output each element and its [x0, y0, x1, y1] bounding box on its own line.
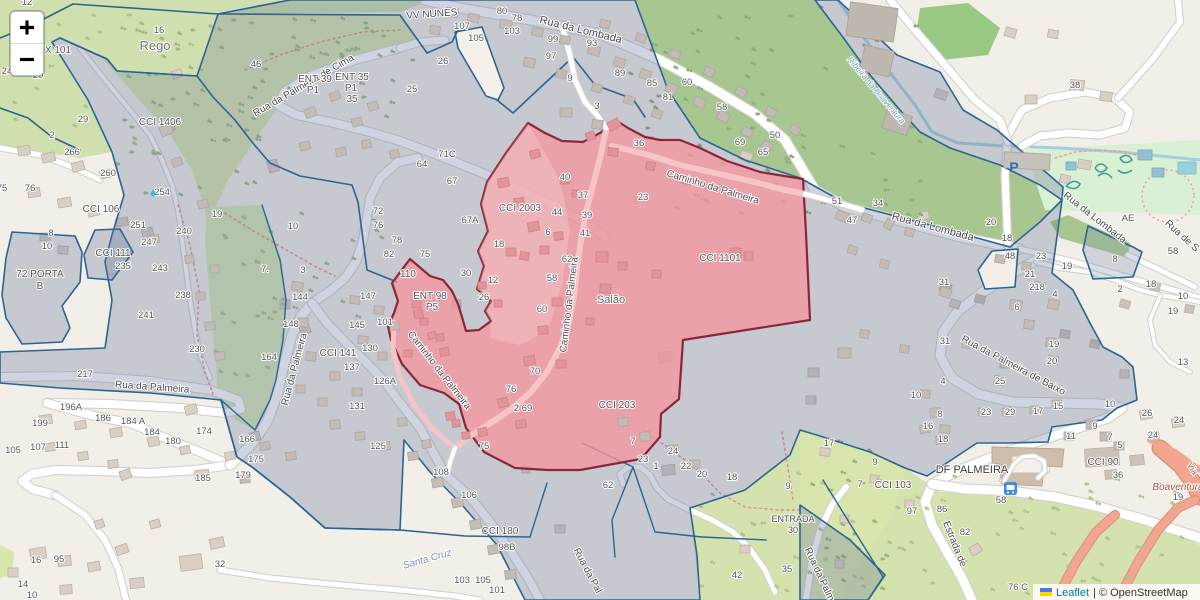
svg-text:166: 166 — [239, 434, 255, 445]
svg-text:108: 108 — [433, 467, 449, 478]
svg-text:101: 101 — [377, 317, 393, 328]
svg-text:35: 35 — [782, 564, 793, 575]
svg-text:32: 32 — [215, 559, 226, 570]
svg-text:31: 31 — [940, 336, 951, 347]
svg-text:64: 64 — [417, 159, 428, 170]
svg-text:29: 29 — [78, 114, 89, 125]
svg-text:243: 243 — [152, 263, 168, 274]
svg-text:8: 8 — [1112, 254, 1117, 265]
svg-text:Salão: Salão — [597, 294, 625, 306]
svg-text:24: 24 — [668, 446, 679, 457]
svg-text:23: 23 — [638, 454, 649, 465]
svg-text:99: 99 — [548, 34, 559, 45]
svg-text:P5: P5 — [426, 302, 439, 313]
svg-text:185: 185 — [195, 473, 211, 484]
svg-text:238: 238 — [175, 290, 191, 301]
svg-text:58: 58 — [717, 102, 728, 113]
svg-text:3: 3 — [594, 101, 599, 112]
svg-text:78: 78 — [392, 235, 403, 246]
svg-text:218: 218 — [1029, 282, 1045, 293]
svg-text:25: 25 — [995, 376, 1006, 387]
svg-text:39: 39 — [582, 210, 593, 221]
svg-text:65: 65 — [758, 147, 769, 158]
svg-text:103: 103 — [504, 26, 520, 37]
svg-text:62: 62 — [562, 254, 573, 265]
svg-text:78: 78 — [512, 13, 523, 24]
svg-text:14: 14 — [18, 579, 29, 590]
svg-text:164: 164 — [261, 352, 277, 363]
svg-text:260: 260 — [100, 168, 116, 179]
svg-text:P1: P1 — [307, 85, 320, 96]
svg-text:26: 26 — [438, 56, 449, 67]
svg-text:7: 7 — [857, 479, 862, 490]
svg-text:10: 10 — [288, 221, 299, 232]
svg-text:23: 23 — [1036, 251, 1047, 262]
svg-text:89: 89 — [615, 68, 626, 79]
svg-text:38: 38 — [1070, 80, 1081, 91]
svg-text:3: 3 — [300, 265, 305, 276]
svg-text:36: 36 — [1113, 470, 1124, 481]
svg-text:21: 21 — [1025, 269, 1036, 280]
svg-text:9: 9 — [785, 481, 790, 492]
svg-text:76: 76 — [373, 220, 384, 231]
svg-text:251: 251 — [130, 220, 146, 231]
svg-text:DF PALMEIRA: DF PALMEIRA — [936, 464, 1009, 476]
svg-text:CCI 2003: CCI 2003 — [499, 203, 542, 214]
svg-text:95: 95 — [54, 554, 65, 565]
svg-text:ENT 35: ENT 35 — [335, 72, 369, 83]
svg-text:9: 9 — [1092, 421, 1097, 432]
svg-text:19: 19 — [212, 209, 223, 220]
svg-text:241: 241 — [138, 310, 154, 321]
svg-text:130: 130 — [362, 343, 378, 354]
svg-text:7.: 7. — [261, 264, 269, 275]
svg-text:19: 19 — [1062, 261, 1073, 272]
svg-text:51: 51 — [832, 196, 843, 207]
svg-text:199: 199 — [32, 418, 48, 429]
svg-text:7: 7 — [1107, 432, 1112, 443]
svg-text:131: 131 — [349, 401, 365, 412]
svg-text:105: 105 — [468, 33, 484, 44]
svg-text:ENTRADA: ENTRADA — [771, 514, 814, 524]
svg-text:217: 217 — [77, 369, 93, 380]
svg-text:110: 110 — [400, 269, 416, 280]
svg-text:ENT 39: ENT 39 — [298, 74, 332, 85]
svg-text:18: 18 — [494, 239, 505, 250]
svg-text:16: 16 — [923, 421, 934, 432]
svg-text:42: 42 — [732, 570, 743, 581]
svg-text:75: 75 — [420, 249, 431, 260]
svg-text:CCI 1101: CCI 1101 — [699, 253, 741, 264]
svg-text:10: 10 — [27, 590, 38, 600]
svg-text:2 69: 2 69 — [514, 403, 533, 414]
svg-text:10: 10 — [1105, 399, 1116, 410]
svg-text:25: 25 — [407, 84, 418, 95]
svg-text:60: 60 — [537, 304, 548, 315]
svg-text:72: 72 — [373, 206, 384, 217]
svg-text:18: 18 — [727, 472, 738, 483]
svg-text:23: 23 — [638, 192, 649, 203]
svg-text:5: 5 — [1117, 440, 1122, 451]
svg-text:2: 2 — [49, 130, 54, 141]
svg-text:P: P — [1009, 159, 1018, 175]
svg-text:CCI 106: CCI 106 — [83, 204, 120, 215]
svg-text:72 PORTA: 72 PORTA — [16, 269, 64, 280]
svg-text:126A: 126A — [374, 376, 397, 387]
svg-text:Leaflet: Leaflet — [1056, 587, 1089, 599]
svg-text:15: 15 — [1053, 401, 1064, 412]
svg-text:CCI 90: CCI 90 — [1087, 457, 1119, 468]
svg-text:12: 12 — [488, 275, 499, 286]
svg-text:144: 144 — [292, 292, 308, 303]
svg-text:19: 19 — [1168, 306, 1179, 317]
svg-text:23: 23 — [981, 407, 992, 418]
svg-text:16: 16 — [154, 25, 165, 36]
svg-text:174: 174 — [196, 426, 212, 437]
svg-text:75: 75 — [479, 441, 490, 452]
svg-text:10: 10 — [911, 390, 922, 401]
svg-text:180: 180 — [165, 436, 181, 447]
svg-text:46: 46 — [251, 59, 262, 70]
svg-text:97: 97 — [907, 506, 918, 517]
svg-text:30: 30 — [788, 525, 798, 535]
svg-text:76 C: 76 C — [1008, 582, 1028, 593]
svg-text:175: 175 — [248, 454, 264, 465]
svg-text:18: 18 — [938, 434, 949, 445]
svg-text:240: 240 — [176, 226, 192, 237]
svg-text:13: 13 — [1178, 357, 1189, 368]
svg-text:80: 80 — [497, 6, 508, 17]
svg-text:P1: P1 — [345, 83, 358, 94]
svg-text:58: 58 — [996, 495, 1007, 506]
svg-text:4: 4 — [940, 376, 945, 387]
svg-text:186: 186 — [95, 413, 111, 424]
svg-text:254: 254 — [154, 187, 170, 198]
svg-text:10: 10 — [1178, 291, 1189, 302]
svg-text:19: 19 — [1049, 339, 1060, 350]
svg-text:71C: 71C — [438, 149, 456, 160]
svg-text:8: 8 — [48, 228, 53, 239]
svg-text:266: 266 — [64, 147, 80, 158]
svg-text:179: 179 — [235, 470, 251, 481]
svg-text:148: 148 — [283, 319, 299, 330]
svg-text:24: 24 — [1148, 430, 1159, 441]
svg-text:82: 82 — [384, 249, 395, 260]
svg-text:1: 1 — [653, 461, 658, 472]
svg-text:30: 30 — [461, 268, 472, 279]
svg-text:76: 76 — [25, 183, 36, 194]
svg-text:81: 81 — [663, 92, 674, 103]
svg-text:18: 18 — [1146, 279, 1157, 290]
svg-text:AE: AE — [1122, 213, 1135, 224]
svg-text:6: 6 — [1014, 302, 1019, 313]
svg-text:107: 107 — [30, 442, 46, 453]
svg-text:19: 19 — [1173, 492, 1184, 503]
svg-text:24: 24 — [1174, 415, 1185, 426]
svg-text:10: 10 — [42, 241, 53, 252]
svg-text:40: 40 — [560, 172, 571, 183]
svg-text:101: 101 — [489, 585, 505, 596]
svg-text:47: 47 — [847, 215, 858, 226]
svg-text:70: 70 — [530, 366, 541, 377]
svg-text:48: 48 — [1005, 251, 1016, 262]
svg-text:44: 44 — [552, 207, 563, 218]
svg-text:CCI 141: CCI 141 — [320, 348, 357, 359]
svg-text:67: 67 — [447, 176, 458, 187]
svg-text:111: 111 — [55, 440, 69, 451]
svg-text:18: 18 — [1002, 233, 1013, 244]
svg-text:CCI 111: CCI 111 — [95, 248, 131, 259]
svg-text:Rego: Rego — [139, 38, 170, 53]
svg-text:35: 35 — [346, 94, 358, 105]
svg-text:8: 8 — [937, 409, 942, 420]
svg-text:93: 93 — [587, 38, 598, 49]
svg-text:76: 76 — [506, 384, 517, 395]
svg-text:16: 16 — [31, 555, 42, 566]
svg-text:60: 60 — [682, 77, 693, 88]
svg-text:11: 11 — [1066, 431, 1076, 442]
svg-text:| © OpenStreetMap: | © OpenStreetMap — [1093, 587, 1188, 599]
svg-text:CCI 203: CCI 203 — [599, 400, 636, 411]
svg-text:97: 97 — [546, 51, 557, 62]
svg-text:B: B — [37, 281, 44, 292]
svg-text:7: 7 — [630, 436, 635, 447]
svg-text:ENT 98: ENT 98 — [413, 291, 447, 302]
svg-text:235: 235 — [115, 261, 131, 272]
svg-text:29: 29 — [1005, 407, 1016, 418]
svg-text:36: 36 — [634, 138, 645, 149]
svg-text:CCI 1406: CCI 1406 — [139, 117, 182, 128]
svg-text:X 101: X 101 — [45, 45, 72, 56]
svg-text:9: 9 — [872, 457, 877, 468]
svg-text:247: 247 — [141, 237, 157, 248]
svg-text:105: 105 — [5, 445, 21, 456]
svg-text:137: 137 — [344, 362, 360, 373]
svg-text:CCI 180: CCI 180 — [482, 526, 519, 537]
svg-text:184 A: 184 A — [121, 416, 146, 427]
svg-text:26: 26 — [1142, 408, 1153, 419]
svg-text:125: 125 — [370, 441, 386, 452]
svg-text:58: 58 — [547, 273, 558, 284]
svg-text:37: 37 — [578, 190, 589, 201]
svg-text:26: 26 — [479, 292, 490, 303]
svg-text:230: 230 — [189, 344, 205, 355]
svg-text:9: 9 — [567, 73, 572, 84]
svg-text:4: 4 — [1052, 289, 1057, 300]
svg-text:62: 62 — [603, 480, 614, 491]
svg-text:147: 147 — [360, 291, 376, 302]
svg-text:75: 75 — [0, 183, 7, 194]
svg-text:17: 17 — [824, 438, 835, 449]
svg-text:196A: 196A — [60, 402, 83, 413]
svg-text:20: 20 — [986, 217, 997, 228]
svg-text:85: 85 — [647, 78, 658, 89]
svg-text:41: 41 — [580, 228, 591, 239]
svg-text:12: 12 — [22, 0, 33, 8]
svg-text:98B: 98B — [499, 542, 516, 553]
svg-text:20: 20 — [1047, 356, 1058, 367]
svg-text:107: 107 — [454, 21, 470, 32]
svg-text:CCI 103: CCI 103 — [875, 480, 912, 491]
svg-text:17: 17 — [1033, 406, 1044, 417]
svg-text:50: 50 — [770, 130, 781, 141]
svg-text:69: 69 — [735, 137, 746, 148]
svg-text:145: 145 — [349, 320, 365, 331]
svg-text:34: 34 — [873, 198, 884, 209]
svg-text:31: 31 — [939, 277, 950, 288]
svg-text:184: 184 — [144, 427, 160, 438]
svg-text:2: 2 — [1117, 284, 1122, 295]
svg-text:86: 86 — [937, 504, 948, 515]
svg-text:20: 20 — [697, 469, 708, 480]
svg-text:82: 82 — [960, 527, 971, 538]
svg-text:103: 103 — [454, 575, 470, 586]
svg-text:106: 106 — [461, 490, 477, 501]
svg-text:6: 6 — [545, 227, 550, 238]
svg-text:67A: 67A — [462, 215, 480, 226]
svg-text:58: 58 — [1168, 246, 1179, 257]
svg-text:22: 22 — [681, 461, 692, 472]
